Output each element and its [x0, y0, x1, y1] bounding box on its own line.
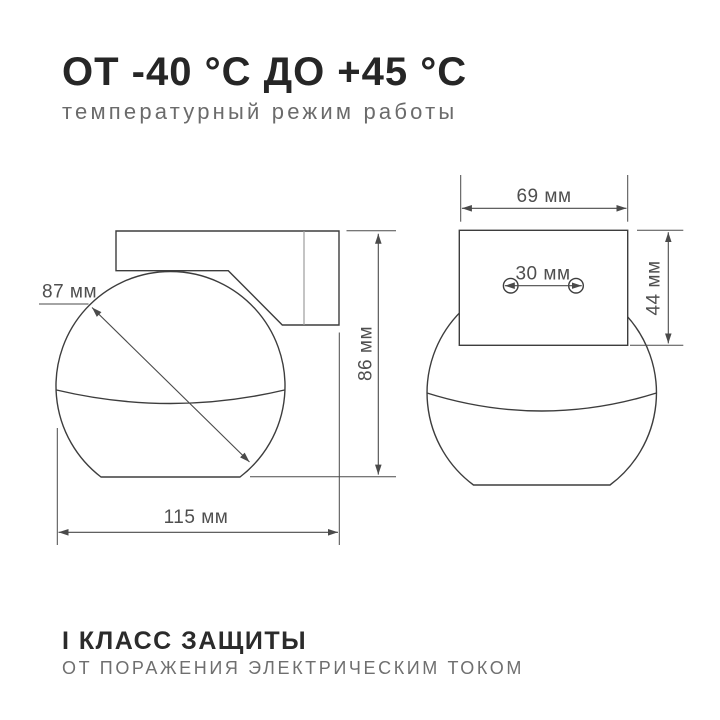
plate-width-dimension-label: 69 мм	[516, 186, 571, 207]
diameter-dimension-label: 87 мм	[42, 282, 97, 303]
spec-page: ОТ -40 °C ДО +45 °C температурный режим …	[0, 0, 720, 720]
dimension-drawing: 87 мм 115 мм 86 мм 30 мм	[0, 0, 720, 720]
front-view-drawing: 30 мм 69 мм 44 мм	[427, 175, 683, 485]
side-view-drawing: 87 мм 115 мм 86 мм	[39, 231, 396, 545]
protection-class-subtitle: ОТ ПОРАЖЕНИЯ ЭЛЕКТРИЧЕСКИМ ТОКОМ	[62, 658, 524, 678]
height-dimension-label: 86 мм	[356, 326, 377, 381]
protection-class-title: I КЛАСС ЗАЩИТЫ	[62, 628, 524, 654]
hole-spacing-dimension-label: 30 мм	[515, 264, 570, 285]
front-view-mount-plate	[459, 230, 627, 345]
width-dimension-label: 115 мм	[164, 507, 229, 528]
protection-class-section: I КЛАСС ЗАЩИТЫ ОТ ПОРАЖЕНИЯ ЭЛЕКТРИЧЕСКИ…	[62, 628, 524, 678]
plate-height-dimension-label: 44 мм	[644, 260, 665, 315]
